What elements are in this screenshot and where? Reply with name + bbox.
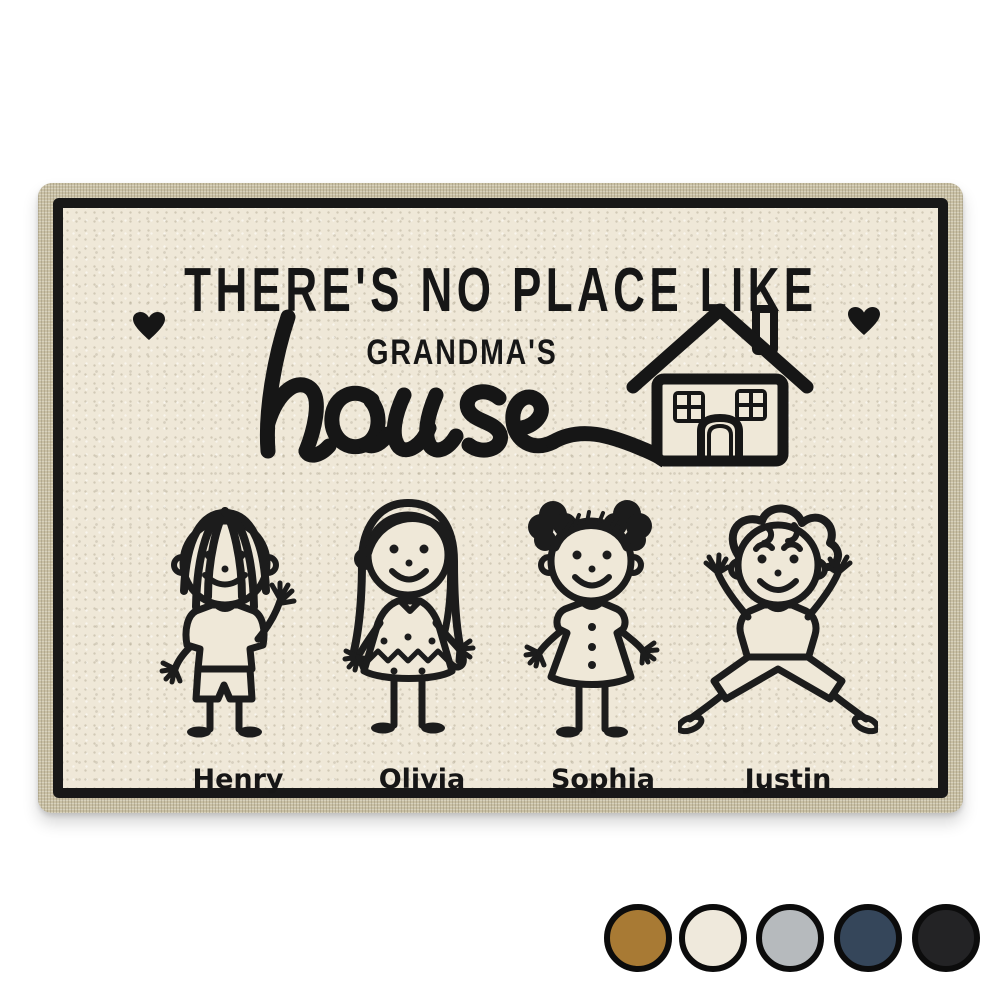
heart-icon bbox=[132, 311, 166, 342]
house-script-word: house bbox=[232, 301, 662, 496]
kid-name-label: Sophia bbox=[523, 764, 683, 795]
color-swatch-gray[interactable] bbox=[756, 904, 824, 972]
house-illustration bbox=[615, 299, 825, 474]
doormat-field: THERE'S NO PLACE LIKE GRANDMA'S house bbox=[53, 198, 948, 798]
kid-figure-sophia bbox=[515, 497, 665, 742]
kid-figure-henry bbox=[150, 501, 300, 746]
kid-figure-justin bbox=[678, 497, 878, 747]
color-swatch-brown[interactable] bbox=[604, 904, 672, 972]
product-photo: THERE'S NO PLACE LIKE GRANDMA'S house bbox=[0, 0, 1000, 1000]
color-swatch-black[interactable] bbox=[912, 904, 980, 972]
kid-name-label: Olivia bbox=[342, 764, 502, 795]
kid-name-label: Justin bbox=[708, 764, 868, 795]
color-swatch-navy[interactable] bbox=[834, 904, 902, 972]
doormat: THERE'S NO PLACE LIKE GRANDMA'S house bbox=[38, 183, 963, 813]
kid-name-label: Henry bbox=[158, 764, 318, 795]
color-swatch-cream[interactable] bbox=[679, 904, 747, 972]
kid-figure-olivia bbox=[332, 491, 482, 746]
